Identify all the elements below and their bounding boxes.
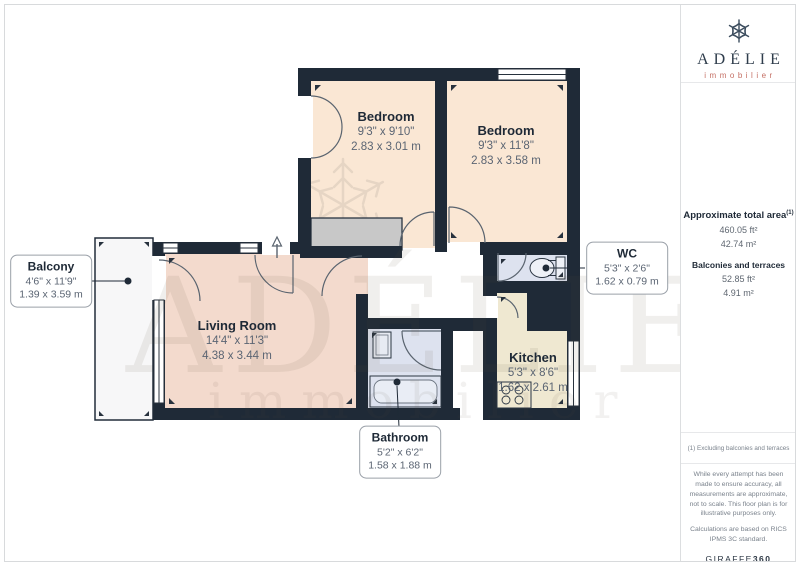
watermark-tagline-text: immobilier — [208, 372, 632, 430]
floor-plan-page: ADÉLIE immobilier — [0, 0, 800, 566]
room-name: WC — [595, 247, 659, 263]
agency-tagline: immobilier — [684, 71, 796, 80]
giraffe360-brand: GIRAFFE360 — [688, 554, 789, 564]
room-size-imperial: 14'4" x 11'3" — [198, 334, 277, 349]
total-area-m: 42.74 m² — [681, 239, 796, 249]
snowflake-logo-icon — [681, 18, 796, 49]
floor-plan-canvas: ADÉLIE immobilier — [0, 0, 680, 566]
legal-section: While every attempt has been made to ens… — [688, 470, 789, 564]
room-name: Bedroom — [471, 123, 541, 139]
footnote-ref: (1) — [786, 210, 793, 216]
wc-callout: WC 5'3" x 2'6" 1.62 x 0.79 m — [586, 242, 668, 295]
balconies-area-ft: 52.85 ft² — [681, 274, 796, 284]
room-size-metric: 2.83 x 3.58 m — [471, 154, 541, 169]
room-size-metric: 1.62 x 0.79 m — [595, 276, 659, 290]
room-name: Bedroom — [351, 109, 421, 125]
room-size-metric: 1.58 x 1.88 m — [368, 460, 432, 474]
area-summary: Approximate total area(1) 460.05 ft² 42.… — [681, 210, 796, 298]
room-size-metric: 2.83 x 3.01 m — [351, 140, 421, 155]
disclaimer-text: While every attempt has been made to ens… — [688, 470, 789, 519]
room-size-metric: 4.38 x 3.44 m — [198, 349, 277, 364]
living-room-label: Living Room 14'4" x 11'3" 4.38 x 3.44 m — [198, 318, 277, 364]
footnote-section: (1) Excluding balconies and terraces — [681, 432, 796, 464]
balconies-area-m: 4.91 m² — [681, 288, 796, 298]
room-name: Living Room — [198, 318, 277, 334]
agency-logo: ADÉLIE immobilier — [681, 4, 796, 83]
room-size-imperial: 5'3" x 8'6" — [498, 366, 568, 381]
room-size-metric: 1.62 x 2.61 m — [498, 381, 568, 396]
kitchen-label: Kitchen 5'3" x 8'6" 1.62 x 2.61 m — [498, 350, 568, 396]
room-name: Kitchen — [498, 350, 568, 366]
footnote-text: (1) Excluding balconies and terraces — [684, 445, 794, 452]
calculations-text: Calculations are based on RICS IPMS 3C s… — [688, 525, 789, 545]
room-size-imperial: 5'2" x 6'2" — [368, 446, 432, 460]
bedroom2-window — [498, 69, 566, 80]
room-size-imperial: 5'3" x 2'6" — [595, 262, 659, 276]
room-name: Bathroom — [368, 431, 432, 447]
total-area-ft: 460.05 ft² — [681, 225, 796, 235]
room-name: Balcony — [19, 260, 83, 276]
bedroom1-label: Bedroom 9'3" x 9'10" 2.83 x 3.01 m — [351, 109, 421, 155]
bathroom-callout: Bathroom 5'2" x 6'2" 1.58 x 1.88 m — [359, 426, 441, 479]
room-size-imperial: 9'3" x 9'10" — [351, 125, 421, 140]
agency-name: ADÉLIE — [686, 51, 796, 69]
room-size-imperial: 9'3" x 11'8" — [471, 139, 541, 154]
balconies-heading: Balconies and terraces — [681, 260, 796, 270]
room-size-imperial: 4'6" x 11'9" — [19, 275, 83, 289]
balcony-callout: Balcony 4'6" x 11'9" 1.39 x 3.59 m — [10, 255, 92, 308]
closet-box — [311, 218, 402, 250]
total-area-heading: Approximate total area(1) — [681, 210, 796, 221]
info-sidebar: ADÉLIE immobilier Approximate total area… — [680, 4, 796, 561]
room-size-metric: 1.39 x 3.59 m — [19, 289, 83, 303]
bedroom2-label: Bedroom 9'3" x 11'8" 2.83 x 3.58 m — [471, 123, 541, 169]
